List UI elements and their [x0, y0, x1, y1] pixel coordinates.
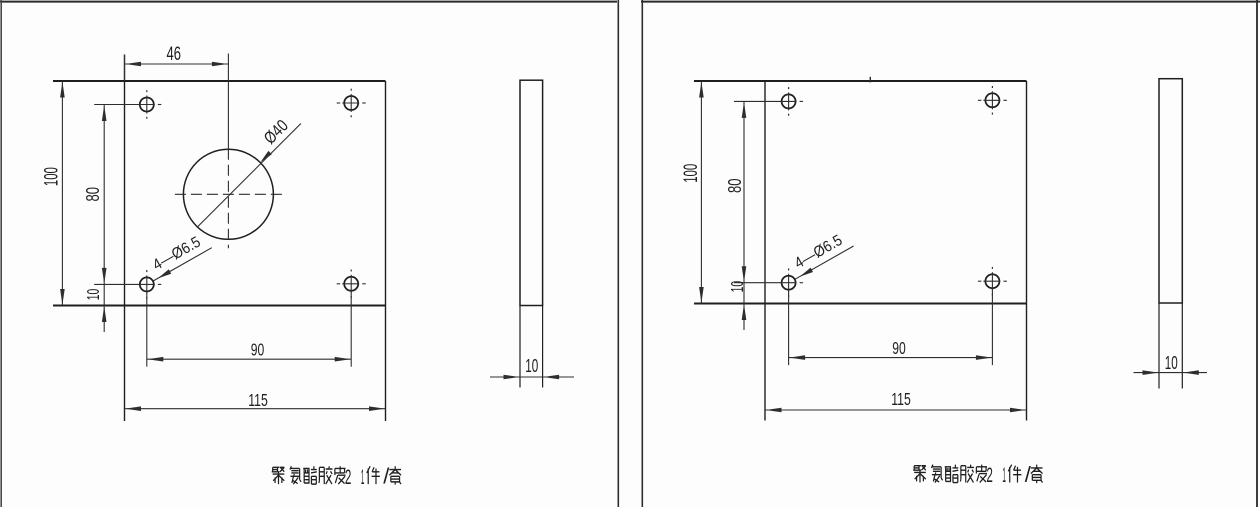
svg-text:80: 80	[82, 187, 103, 202]
svg-text:10: 10	[1165, 353, 1178, 373]
svg-text:90: 90	[251, 339, 265, 359]
svg-text:/: /	[1025, 462, 1032, 487]
svg-text:10: 10	[83, 289, 103, 301]
svg-text:2: 2	[986, 463, 993, 487]
svg-text:2: 2	[345, 465, 352, 489]
svg-text:90: 90	[892, 338, 906, 358]
svg-text:115: 115	[248, 390, 268, 410]
svg-text:115: 115	[891, 389, 911, 409]
svg-text:100: 100	[42, 167, 63, 186]
svg-text:10: 10	[727, 281, 747, 293]
svg-text:80: 80	[724, 178, 745, 193]
svg-text:10: 10	[525, 356, 538, 376]
svg-text:1: 1	[1002, 463, 1006, 487]
svg-text:1: 1	[361, 465, 365, 489]
svg-text:100: 100	[681, 164, 702, 183]
svg-text:/: /	[383, 463, 390, 488]
svg-text:46: 46	[166, 44, 181, 65]
